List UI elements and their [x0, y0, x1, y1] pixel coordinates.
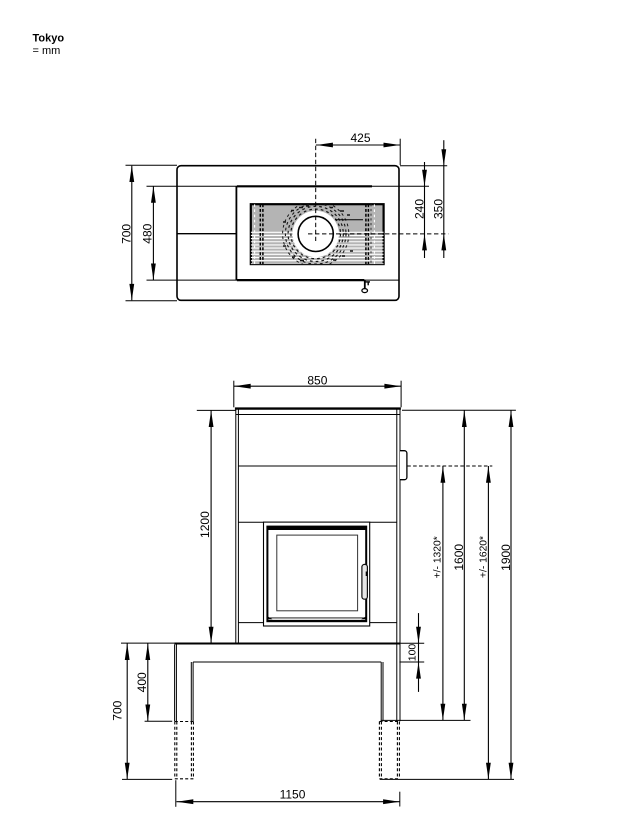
- svg-text:+/- 1320*: +/- 1320*: [432, 536, 443, 578]
- svg-text:425: 425: [350, 131, 370, 145]
- svg-text:850: 850: [307, 373, 327, 387]
- svg-text:+/- 1620*: +/- 1620*: [479, 536, 490, 578]
- svg-text:1150: 1150: [280, 787, 306, 801]
- svg-text:1200: 1200: [198, 511, 212, 538]
- svg-text:1600: 1600: [452, 544, 466, 571]
- svg-text:Tokyo: Tokyo: [33, 32, 65, 44]
- svg-text:1900: 1900: [499, 544, 513, 571]
- svg-text:700: 700: [111, 700, 125, 720]
- svg-text:480: 480: [140, 223, 154, 243]
- svg-text:100: 100: [406, 644, 418, 662]
- svg-text:400: 400: [135, 672, 149, 692]
- svg-text:700: 700: [119, 224, 133, 244]
- svg-text:240: 240: [412, 199, 426, 219]
- svg-text:350: 350: [431, 199, 445, 219]
- svg-text:= mm: = mm: [33, 45, 61, 57]
